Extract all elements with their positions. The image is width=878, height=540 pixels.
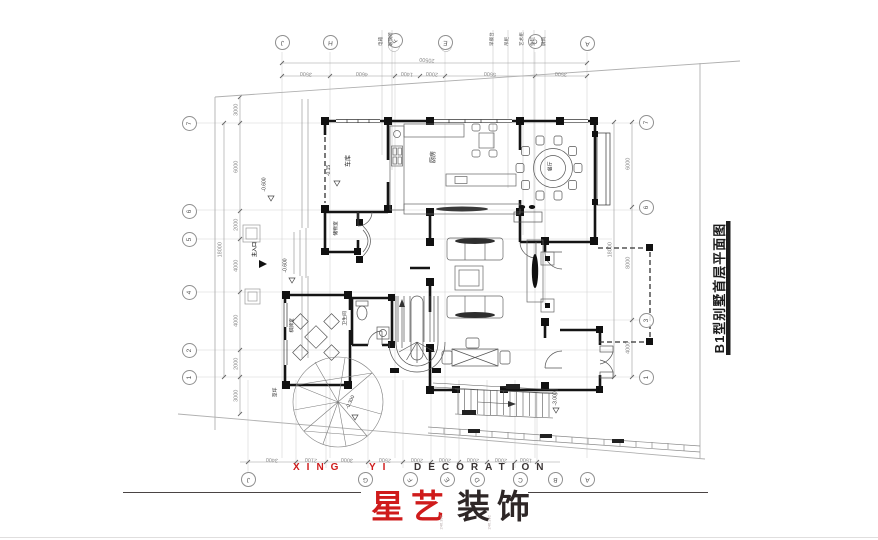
dim-left-3: 2000 [234,210,240,240]
callout-diaogui: 吊柜 [504,6,512,46]
axis-bubble-right-6: 6 [639,200,654,215]
dim-left-4: 4000 [234,251,240,281]
living-furniture [447,238,554,318]
dining-table [514,136,582,222]
dim-left-overall: 18000 [218,235,224,265]
room-label-bath: 卫生间 [344,311,349,325]
dim-left-2: 6000 [234,152,240,182]
level-garage: -0.15 [327,165,332,176]
terrace-edge [428,427,700,452]
level-entry: -0.600 [284,258,289,272]
survey-mark-2: 246.392 [487,504,492,530]
room-label-kitchen: 厨房 [431,151,437,163]
level-terrace: -3.000 [554,391,559,405]
callout-yishugui: 艺术柜 [519,6,527,46]
page-edge-line [0,537,878,538]
driveway [243,99,308,358]
axis-bubble-left-1: 1 [182,370,197,385]
room-label-garage: 车库 [346,155,352,167]
floor-plan-sheet: J H F E C A 3500 4600 1400 2000 5500 350… [0,0,878,540]
dim-right-3: 4000 [626,333,632,363]
callout-pingfeng: 屏风 [541,6,549,46]
dim-left-7: 3000 [234,381,240,411]
dim-right-2: 8000 [626,248,632,278]
bathroom-fixtures [356,301,389,339]
level-driveway: -0.600 [263,177,268,191]
dim-right-1: 6000 [626,149,632,179]
axis-bubble-left-7: 7 [182,116,197,131]
brand-cn-dark: 装饰 [457,480,537,528]
axis-bubble-left-4: 4 [182,285,197,300]
doors [358,212,613,378]
axis-bubble-right-1: 1 [639,370,654,385]
exterior-steps [433,383,558,418]
study-desk [442,338,510,366]
axis-bubble-right-3: 3 [639,313,654,328]
axis-bubble-left-5: 5 [182,232,197,247]
dim-left-6: 2000 [234,349,240,379]
drawing-title: B1型别墅首层平面图 [709,221,727,355]
kitchen-fittings [390,124,520,214]
axis-bubble-left-2: 2 [182,343,197,358]
brand-latin-yi: YI [369,462,392,473]
axis-bubble-left-6: 6 [182,204,197,219]
axis-bubble-right-7: 7 [639,115,654,130]
survey-mark-1: 246.392 [439,504,444,530]
brand-latin-decoration: DECORATION [414,462,550,473]
brand-latin-xing: XING [293,462,345,473]
room-label-storage: 储物室 [335,221,340,235]
room-label-dining: 餐厅 [549,162,554,172]
main-stair [389,296,445,372]
logo-rule-left [123,492,361,493]
callout-dianxiang: 电箱 [378,6,386,46]
dim-left-1: 3000 [234,95,240,125]
entrance-label: 主入口 [253,242,258,257]
callout-yugang: 鱼缸 [530,6,538,46]
lawn-circle [293,357,383,447]
room-label-mahjong: 棋牌室 [291,318,296,332]
logo-rule-right [528,492,708,493]
dim-left-5: 4000 [234,306,240,336]
room-label-lawn: 草坪 [274,388,279,398]
callout-bolizhuan: 玻璃砖 [388,6,396,46]
callout-zaocantai: 早餐台 [489,6,497,46]
dim-right-overall: 18000 [608,235,614,265]
